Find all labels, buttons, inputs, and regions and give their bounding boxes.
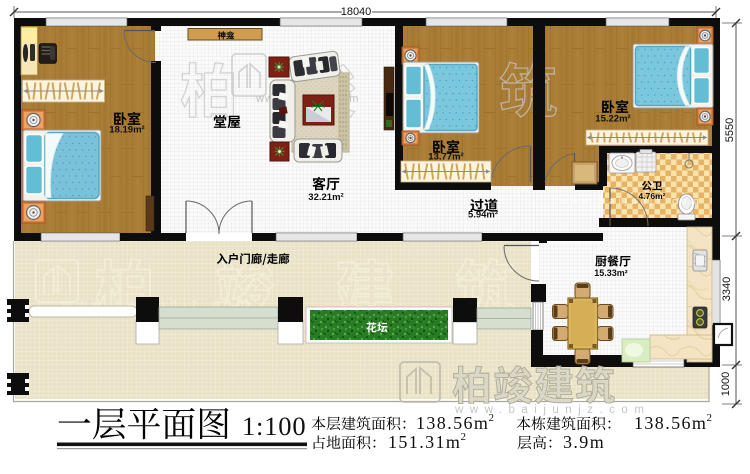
svg-text:5.94m²: 5.94m²	[468, 210, 498, 221]
svg-text:1000: 1000	[720, 372, 732, 396]
svg-text:18040: 18040	[341, 6, 372, 18]
svg-text:13.77m²: 13.77m²	[428, 152, 463, 163]
svg-text:3.9m: 3.9m	[563, 432, 605, 452]
svg-text:32.21m²: 32.21m²	[308, 192, 343, 203]
svg-text:138.56m: 138.56m	[416, 413, 489, 433]
svg-text:3340: 3340	[721, 277, 733, 301]
svg-text:15.22m²: 15.22m²	[595, 114, 630, 125]
svg-text:2: 2	[461, 431, 467, 443]
svg-text:www.baijunjz.com: www.baijunjz.com	[559, 196, 703, 207]
svg-text:138.56m: 138.56m	[634, 413, 707, 433]
svg-text:1:100: 1:100	[242, 411, 306, 441]
svg-text:2: 2	[489, 412, 495, 424]
svg-text:5550: 5550	[724, 118, 736, 142]
svg-text:151.31m: 151.31m	[388, 432, 461, 452]
svg-text:15.33m²: 15.33m²	[594, 268, 628, 278]
svg-text:18.19m²: 18.19m²	[109, 125, 144, 136]
svg-text:2: 2	[707, 412, 713, 424]
